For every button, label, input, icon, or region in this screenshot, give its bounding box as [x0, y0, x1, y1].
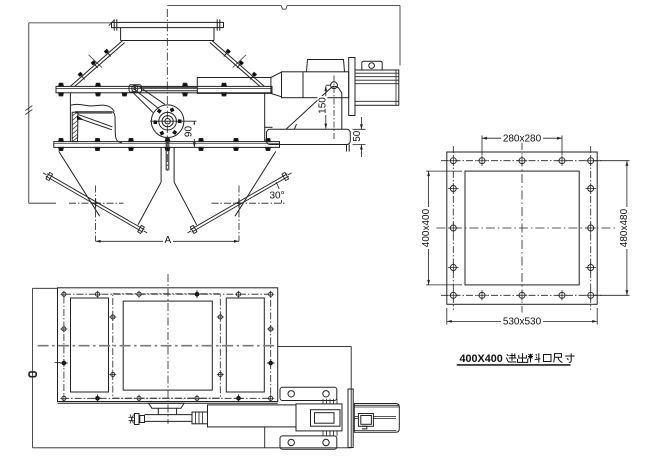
svg-text:30°: 30°: [270, 190, 285, 201]
svg-text:50: 50: [352, 130, 363, 142]
svg-text:480x480: 480x480: [619, 208, 630, 247]
svg-text:90: 90: [183, 126, 194, 138]
svg-text:150: 150: [318, 97, 329, 114]
svg-text:400x400: 400x400: [421, 208, 432, 247]
svg-text:A: A: [164, 235, 171, 246]
svg-text:400X400: 400X400: [460, 353, 503, 365]
svg-text:530x530: 530x530: [503, 317, 542, 328]
svg-text:280x280: 280x280: [503, 133, 542, 144]
